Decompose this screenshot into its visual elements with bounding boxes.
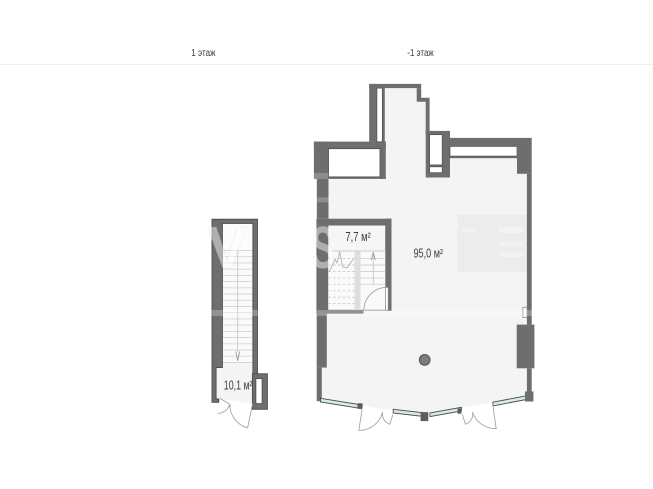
svg-text:-1 этаж: -1 этаж <box>407 48 434 59</box>
svg-text:V: V <box>207 215 247 281</box>
svg-text:1 этаж: 1 этаж <box>191 48 215 59</box>
svg-text:S: S <box>311 215 335 281</box>
svg-text:7,7 м²: 7,7 м² <box>345 230 370 244</box>
svg-text:95,0 м²: 95,0 м² <box>414 246 444 260</box>
svg-text:10,1 м²: 10,1 м² <box>224 378 253 392</box>
